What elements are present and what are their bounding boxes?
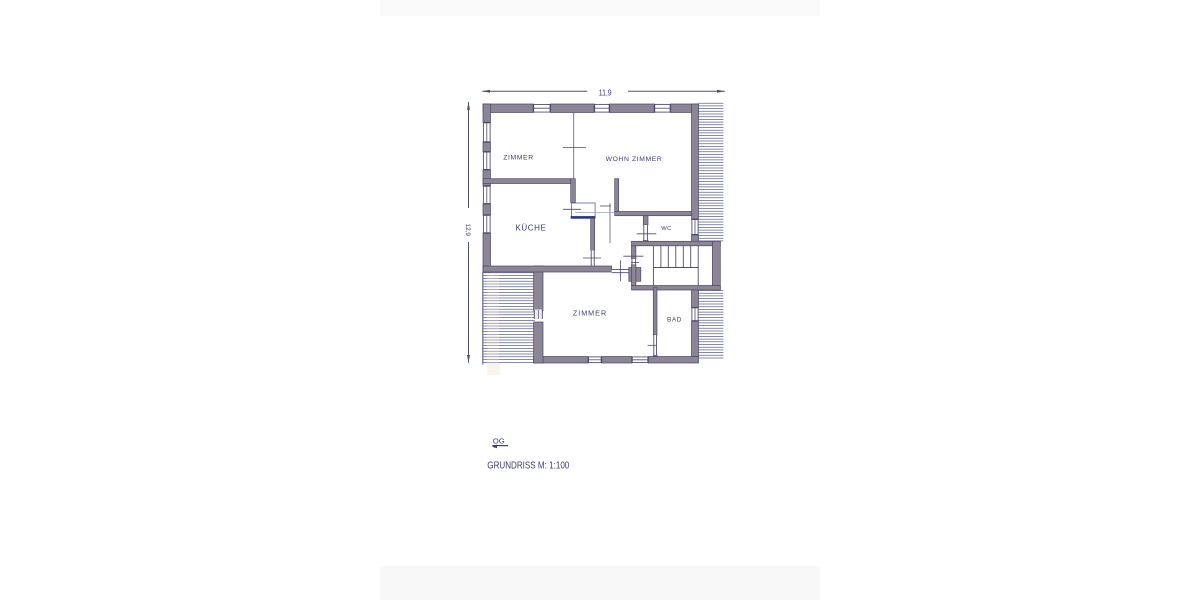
svg-text:WC: WC: [661, 226, 671, 232]
svg-text:ZIMMER: ZIMMER: [573, 308, 607, 317]
svg-text:OG: OG: [493, 438, 505, 445]
svg-text:KÜCHE: KÜCHE: [515, 224, 546, 233]
svg-text:GRUNDRISS M: 1:100: GRUNDRISS M: 1:100: [487, 461, 569, 472]
svg-text:WOHN ZIMMER: WOHN ZIMMER: [606, 156, 663, 163]
svg-text:11,9: 11,9: [599, 87, 612, 97]
svg-text:ZIMMER: ZIMMER: [503, 155, 533, 162]
svg-text:BAD: BAD: [667, 317, 682, 324]
svg-text:12,9: 12,9: [464, 224, 471, 237]
